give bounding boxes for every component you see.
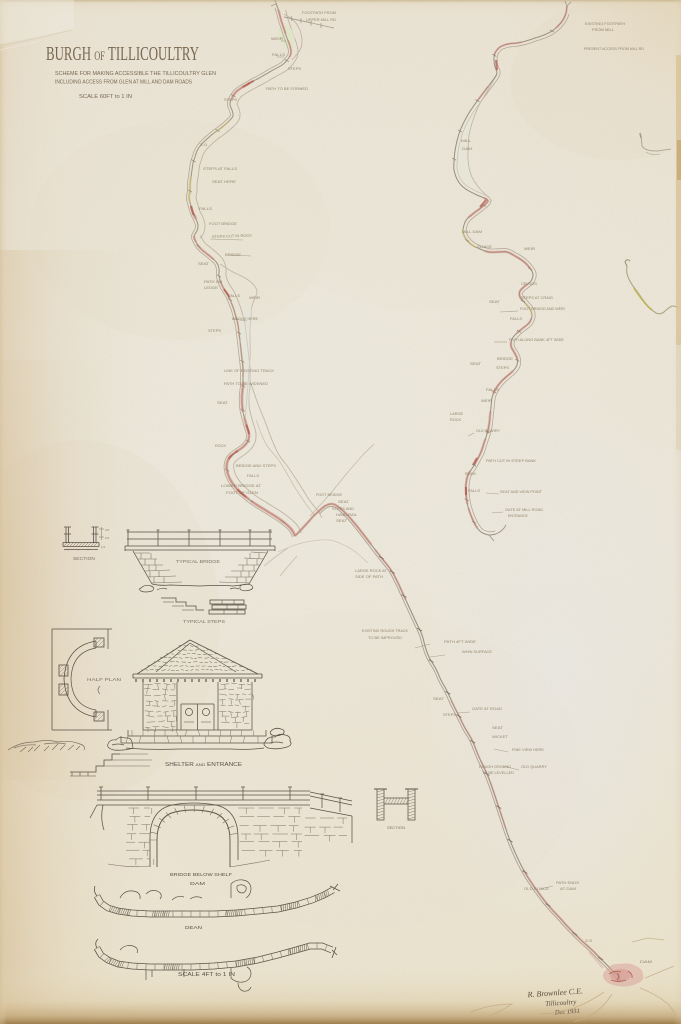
svg-text:GATE AT ROAD: GATE AT ROAD [472, 707, 502, 711]
svg-text:SCALE 4FT to 1 IN: SCALE 4FT to 1 IN [178, 972, 236, 978]
svg-text:WEIR: WEIR [249, 296, 260, 300]
svg-text:FOOT OF GLEN: FOOT OF GLEN [226, 491, 258, 495]
svg-text:TYPICAL BRIDGE: TYPICAL BRIDGE [176, 559, 220, 564]
svg-text:SEAT: SEAT [217, 401, 229, 405]
svg-text:PATH TO BE FORMED: PATH TO BE FORMED [266, 87, 308, 91]
svg-text:UPPER MILL RD: UPPER MILL RD [306, 18, 336, 22]
svg-text:WHIN SURFACE: WHIN SURFACE [462, 650, 493, 654]
svg-text:FALLS: FALLS [199, 207, 213, 211]
svg-text:FALLS: FALLS [468, 489, 481, 493]
svg-text:SEAT: SEAT [470, 362, 482, 366]
svg-text:SEAT: SEAT [433, 697, 445, 701]
svg-text:TO BE IMPROVED: TO BE IMPROVED [368, 636, 402, 640]
svg-text:STEPS AND: STEPS AND [332, 507, 354, 511]
svg-text:SEAT: SEAT [489, 300, 501, 304]
svg-text:4.0: 4.0 [105, 528, 110, 532]
svg-text:INCLUDING ACCESS FROM GLEN: INCLUDING ACCESS FROM GLEN AT MILL AND D… [55, 80, 192, 86]
svg-text:ROCK: ROCK [465, 472, 477, 476]
svg-text:FOOT BRIDGE: FOOT BRIDGE [209, 222, 238, 226]
svg-text:WEIR: WEIR [524, 247, 535, 251]
svg-text:SEAT: SEAT [336, 519, 348, 523]
svg-text:ROCK: ROCK [215, 444, 227, 448]
svg-text:2.0: 2.0 [585, 939, 592, 943]
svg-text:1.0: 1.0 [101, 545, 106, 549]
svg-text:FALLS: FALLS [510, 317, 523, 321]
svg-text:ENTRANCE: ENTRANCE [508, 514, 529, 518]
svg-text:FALLS: FALLS [486, 388, 500, 392]
svg-text:BRIDGE: BRIDGE [497, 357, 514, 361]
svg-text:SEAT: SEAT [198, 262, 210, 266]
svg-text:PATH ON: PATH ON [204, 280, 222, 284]
svg-text:HALF PLAN: HALF PLAN [87, 677, 121, 682]
svg-text:FALLS: FALLS [272, 53, 286, 57]
svg-text:BRIDGE AND STEPS: BRIDGE AND STEPS [236, 464, 277, 468]
svg-text:STEPS: STEPS [224, 98, 238, 102]
svg-text:LINE OF EXISTING TRACK: LINE OF EXISTING TRACK [224, 369, 275, 373]
svg-text:LOWER BRIDGE AT: LOWER BRIDGE AT [221, 484, 262, 488]
svg-text:PATH CUT IN STEEP BANK: PATH CUT IN STEEP BANK [486, 459, 537, 463]
svg-text:STEPS: STEPS [288, 67, 302, 71]
svg-text:DAM: DAM [462, 147, 472, 151]
svg-text:FALLS: FALLS [228, 294, 241, 298]
svg-text:CRAIGS: CRAIGS [521, 282, 538, 286]
svg-text:SEAT: SEAT [338, 500, 350, 504]
svg-text:MILL: MILL [461, 139, 471, 143]
svg-text:BURGH OF TILLICOULTRY: BURGH OF TILLICOULTRY [46, 43, 199, 65]
svg-text:TO BE LEVELLED: TO BE LEVELLED [482, 771, 514, 775]
svg-text:EXISTING FOOTPATH: EXISTING FOOTPATH [585, 22, 625, 26]
svg-text:LEDGE: LEDGE [204, 286, 219, 290]
svg-text:EXISTING ROUGH TRACK: EXISTING ROUGH TRACK [362, 629, 409, 633]
svg-text:SECTION: SECTION [387, 826, 406, 830]
svg-text:STEPS AT CRAIG: STEPS AT CRAIG [521, 296, 553, 300]
svg-text:2.0: 2.0 [200, 143, 207, 147]
svg-text:SEAT: SEAT [492, 726, 504, 730]
svg-text:FINE VIEW HERE: FINE VIEW HERE [512, 748, 545, 752]
svg-text:MILL DAM: MILL DAM [462, 230, 482, 234]
svg-text:PATH ENDS: PATH ENDS [556, 881, 580, 885]
svg-text:STEPS AT FALLS: STEPS AT FALLS [203, 167, 238, 171]
svg-text:TYPICAL STEPS: TYPICAL STEPS [183, 619, 225, 624]
svg-text:PATH TO BE WIDENED: PATH TO BE WIDENED [224, 382, 268, 386]
svg-text:DAM: DAM [190, 881, 205, 886]
svg-text:SEAT AND VIEW POINT: SEAT AND VIEW POINT [500, 490, 543, 494]
svg-text:SCHEME FOR MAKING ACCESSIBLE: SCHEME FOR MAKING ACCESSIBLE THE TILLICO… [55, 71, 216, 77]
svg-text:HAND RAIL: HAND RAIL [336, 513, 357, 517]
svg-text:PRESENT ACCESS FROM MILL RD: PRESENT ACCESS FROM MILL RD [584, 47, 644, 51]
svg-text:OLD QUARRY: OLD QUARRY [476, 429, 501, 433]
svg-text:SIDE OF PATH: SIDE OF PATH [355, 575, 383, 579]
svg-text:PATH 4FT WIDE: PATH 4FT WIDE [444, 640, 477, 644]
svg-text:FOOT BRIDGE AND WEIR: FOOT BRIDGE AND WEIR [520, 307, 565, 311]
svg-text:PATH ALONG BANK 4FT WIDE: PATH ALONG BANK 4FT WIDE [509, 338, 565, 342]
svg-text:LARGE: LARGE [450, 412, 464, 416]
svg-text:OLD QUARRY: OLD QUARRY [521, 765, 548, 769]
svg-text:FOOT BRIDGE: FOOT BRIDGE [316, 493, 343, 497]
svg-text:AT DAM: AT DAM [560, 887, 576, 891]
svg-text:STEPS: STEPS [208, 329, 222, 333]
svg-text:FOOTPATH FROM: FOOTPATH FROM [302, 11, 336, 15]
svg-text:FALLS: FALLS [247, 474, 260, 478]
svg-text:WICKET: WICKET [492, 735, 509, 739]
svg-text:2.6: 2.6 [105, 536, 110, 540]
svg-text:DAM: DAM [640, 960, 652, 964]
svg-text:ROCK: ROCK [450, 418, 462, 422]
svg-text:GATE AT MILL ROAD: GATE AT MILL ROAD [505, 508, 543, 512]
svg-text:SECTION: SECTION [73, 556, 95, 561]
svg-text:WEIR: WEIR [271, 37, 284, 41]
svg-text:DEAN: DEAN [185, 925, 202, 930]
svg-text:STEPS: STEPS [496, 366, 510, 370]
svg-text:STEPS: STEPS [443, 713, 457, 717]
svg-text:FROM MILL: FROM MILL [592, 28, 614, 32]
svg-text:WEIR: WEIR [481, 399, 492, 403]
svg-text:BRIDGE BELOW SHELF: BRIDGE BELOW SHELF [170, 872, 232, 877]
svg-text:SEAT HERE: SEAT HERE [212, 180, 237, 184]
svg-text:SLUICE: SLUICE [477, 245, 493, 249]
svg-text:SCALE 60FT to 1 IN: SCALE 60FT to 1 IN [79, 94, 132, 100]
svg-text:BRIDGE HERE: BRIDGE HERE [232, 317, 259, 321]
svg-text:LARGE ROCK AT: LARGE ROCK AT [355, 569, 388, 573]
